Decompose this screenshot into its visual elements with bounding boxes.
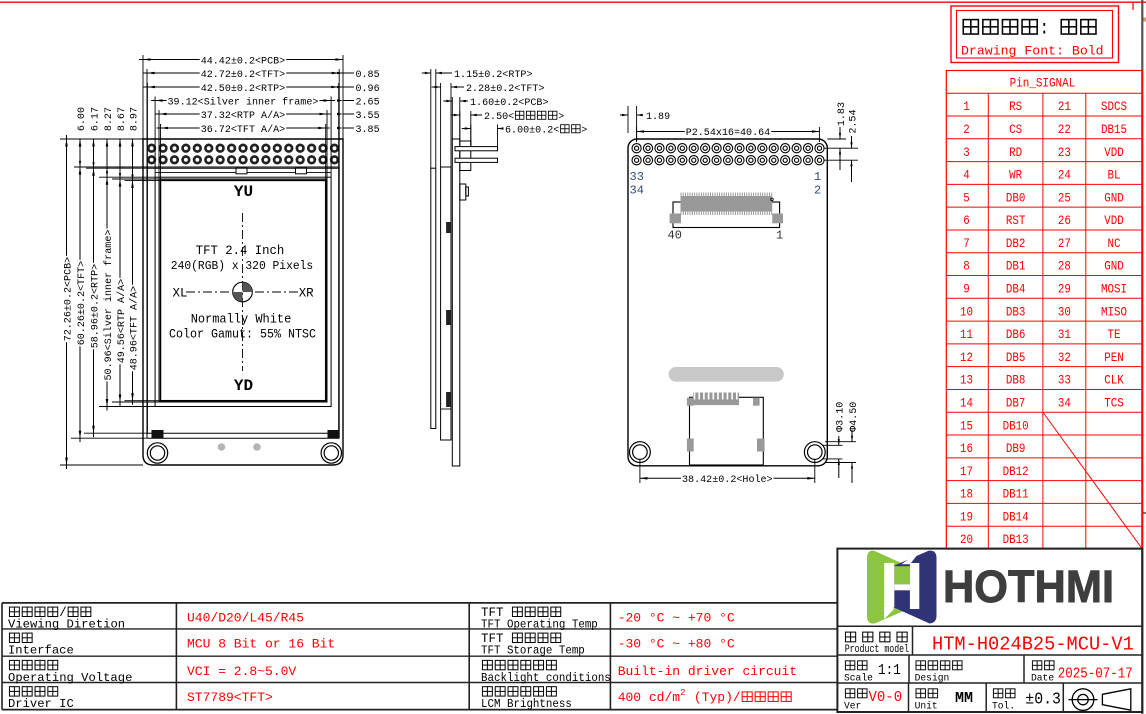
svg-text:MISO: MISO — [1101, 304, 1127, 319]
svg-text:24: 24 — [1058, 168, 1071, 183]
svg-text:MM: MM — [955, 690, 973, 707]
svg-text:32: 32 — [1058, 350, 1071, 365]
svg-text:DB2: DB2 — [1006, 236, 1026, 251]
svg-text:31: 31 — [1058, 327, 1071, 342]
svg-text:6.17: 6.17 — [89, 107, 101, 131]
svg-text:1: 1 — [963, 99, 970, 114]
svg-text:16: 16 — [960, 441, 973, 456]
svg-text:RS: RS — [1009, 99, 1022, 114]
svg-text:400 cd/m: 400 cd/m — [618, 690, 681, 705]
svg-text:20: 20 — [960, 532, 973, 547]
svg-text:YU: YU — [234, 183, 253, 201]
svg-text:1:1: 1:1 — [878, 662, 901, 679]
svg-text:38.42±0.2<Hole>: 38.42±0.2<Hole> — [682, 474, 773, 486]
svg-text:19: 19 — [960, 509, 973, 524]
svg-text:0.85: 0.85 — [356, 69, 380, 81]
svg-text:DB1: DB1 — [1006, 259, 1026, 274]
svg-text:14: 14 — [960, 396, 973, 411]
svg-text:TE: TE — [1108, 327, 1121, 342]
svg-text:DB7: DB7 — [1006, 396, 1026, 411]
svg-text:HTM-H024B25-MCU-V1: HTM-H024B25-MCU-V1 — [932, 634, 1134, 656]
svg-text:2: 2 — [680, 688, 685, 698]
svg-text:4: 4 — [963, 168, 970, 183]
svg-text:RST: RST — [1006, 213, 1026, 228]
svg-text:Design: Design — [915, 673, 950, 685]
svg-text:15: 15 — [960, 418, 973, 433]
svg-text:22: 22 — [1058, 122, 1071, 137]
svg-text:Φ4.50: Φ4.50 — [848, 402, 860, 432]
svg-text:YD: YD — [234, 377, 253, 395]
svg-text:3: 3 — [963, 145, 970, 160]
svg-text:Built-in driver circuit: Built-in driver circuit — [618, 664, 797, 679]
svg-text:49.56<RTP A/A>: 49.56<RTP A/A> — [116, 279, 128, 364]
svg-text:DB5: DB5 — [1006, 350, 1026, 365]
svg-text:Product model: Product model — [845, 644, 909, 656]
svg-text:7: 7 — [963, 236, 970, 251]
svg-text:HOTHMI: HOTHMI — [943, 561, 1114, 612]
svg-text:DB4: DB4 — [1006, 282, 1026, 297]
svg-text:26: 26 — [1058, 213, 1071, 228]
svg-text:50.96<Silver inner frame>: 50.96<Silver inner frame> — [103, 230, 115, 381]
svg-text:3.85: 3.85 — [356, 124, 380, 136]
svg-text:34: 34 — [1058, 396, 1071, 411]
svg-text:39.12<Silver inner frame>: 39.12<Silver inner frame> — [168, 97, 319, 109]
svg-text:DB13: DB13 — [1003, 532, 1029, 547]
svg-text:13: 13 — [960, 373, 973, 388]
svg-text:240(RGB) x 320 Pixels: 240(RGB) x 320 Pixels — [171, 259, 313, 273]
svg-text:(Typ)/: (Typ)/ — [686, 690, 741, 705]
svg-text:-30 °C ~ +80 °C: -30 °C ~ +80 °C — [618, 637, 735, 652]
svg-text:DB8: DB8 — [1006, 373, 1026, 388]
svg-text:Drawing Font: Bold: Drawing Font: Bold — [961, 44, 1104, 59]
svg-text:1: 1 — [814, 170, 821, 184]
svg-text:28: 28 — [1058, 259, 1071, 274]
svg-text:MOSI: MOSI — [1101, 282, 1127, 297]
svg-text:Scale: Scale — [844, 673, 873, 685]
svg-text:GND: GND — [1104, 190, 1124, 205]
svg-text:MCU 8 Bit or 16 Bit: MCU 8 Bit or 16 Bit — [187, 637, 335, 652]
svg-text:DB14: DB14 — [1003, 509, 1029, 524]
svg-text:1: 1 — [776, 229, 783, 243]
svg-text:Operating Voltage: Operating Voltage — [8, 671, 132, 685]
svg-text:RD: RD — [1009, 145, 1022, 160]
svg-text:DB3: DB3 — [1006, 304, 1026, 319]
svg-text:2.28±0.2<TFT>: 2.28±0.2<TFT> — [466, 83, 545, 95]
svg-text:ST7789<TFT>: ST7789<TFT> — [187, 690, 273, 705]
svg-text:2: 2 — [963, 122, 970, 137]
svg-text:27: 27 — [1058, 236, 1071, 251]
svg-text:8.67: 8.67 — [116, 107, 128, 131]
svg-text:DB6: DB6 — [1006, 327, 1026, 342]
svg-text:Driver IC: Driver IC — [8, 697, 74, 711]
svg-text:9: 9 — [963, 282, 970, 297]
svg-text:40: 40 — [668, 229, 682, 243]
svg-text:Φ3.10: Φ3.10 — [835, 402, 847, 432]
svg-text:48.96<TFT A/A>: 48.96<TFT A/A> — [128, 286, 140, 371]
svg-text:2.65: 2.65 — [356, 97, 380, 109]
svg-text:DB10: DB10 — [1003, 418, 1029, 433]
svg-text:DB12: DB12 — [1003, 464, 1029, 479]
svg-text:42.72±0.2<TFT>: 42.72±0.2<TFT> — [201, 69, 286, 81]
svg-text:DB11: DB11 — [1003, 487, 1029, 502]
svg-text:2.54: 2.54 — [847, 110, 859, 134]
svg-text:BL: BL — [1108, 168, 1121, 183]
svg-text:3.55: 3.55 — [356, 110, 380, 122]
svg-text:Unit: Unit — [915, 701, 938, 713]
svg-text:36.72<TFT A/A>: 36.72<TFT A/A> — [201, 124, 286, 136]
svg-text::: : — [1039, 18, 1059, 40]
svg-text:Date: Date — [1031, 673, 1054, 685]
svg-text:U40/D20/L45/R45: U40/D20/L45/R45 — [187, 611, 304, 626]
svg-text:Backlight conditions: Backlight conditions — [481, 671, 611, 685]
svg-text:±0.3: ±0.3 — [1025, 690, 1061, 709]
svg-text:18: 18 — [960, 487, 973, 502]
svg-text:XL: XL — [173, 287, 188, 301]
svg-text:12: 12 — [960, 350, 973, 365]
svg-text:PEN: PEN — [1104, 350, 1124, 365]
svg-text:60.26±0.2<TFT>: 60.26±0.2<TFT> — [76, 261, 88, 346]
svg-text:DB15: DB15 — [1101, 122, 1127, 137]
svg-text:TFT Operating Temp: TFT Operating Temp — [481, 618, 598, 632]
svg-text:10: 10 — [960, 304, 973, 319]
svg-text:30: 30 — [1058, 304, 1071, 319]
svg-text:XR: XR — [299, 287, 314, 301]
svg-text:Tol.: Tol. — [992, 701, 1015, 713]
svg-text:2025-07-17: 2025-07-17 — [1058, 666, 1133, 683]
svg-text:CS: CS — [1009, 122, 1022, 137]
svg-text:23: 23 — [1058, 145, 1071, 160]
svg-text:Normally White: Normally White — [191, 313, 292, 327]
svg-text:Pin_SIGNAL: Pin_SIGNAL — [1010, 77, 1076, 91]
svg-text:11: 11 — [960, 327, 973, 342]
svg-text:0.96: 0.96 — [356, 83, 380, 95]
svg-text:72.26±0.2<PCB>: 72.26±0.2<PCB> — [62, 257, 74, 342]
svg-text:34: 34 — [630, 184, 644, 198]
svg-text:>: > — [558, 111, 564, 123]
svg-text:Interface: Interface — [8, 644, 74, 658]
svg-text:>: > — [581, 125, 587, 137]
svg-text:Color Gamut: 55% NTSC: Color Gamut: 55% NTSC — [169, 328, 316, 342]
svg-text:17: 17 — [960, 464, 973, 479]
svg-text:NC: NC — [1108, 236, 1121, 251]
svg-text:V0-0: V0-0 — [869, 690, 903, 706]
svg-text:21: 21 — [1058, 99, 1071, 114]
svg-text:DB0: DB0 — [1006, 190, 1026, 205]
svg-text:1.15±0.2<RTP>: 1.15±0.2<RTP> — [454, 69, 533, 81]
svg-text:58.96±0.2<RTP>: 58.96±0.2<RTP> — [89, 264, 101, 349]
svg-text:33: 33 — [630, 170, 644, 184]
svg-text:2.50<: 2.50< — [484, 111, 514, 123]
svg-text:Viewing Diretion: Viewing Diretion — [8, 618, 125, 632]
svg-text:Ver: Ver — [844, 701, 861, 713]
svg-text:37.32<RTP A/A>: 37.32<RTP A/A> — [201, 110, 286, 122]
svg-text:25: 25 — [1058, 190, 1071, 205]
svg-text:6.00: 6.00 — [76, 107, 88, 131]
svg-text:8.97: 8.97 — [128, 107, 140, 131]
svg-text:8.27: 8.27 — [103, 107, 115, 131]
svg-text:44.42±0.2<PCB>: 44.42±0.2<PCB> — [201, 56, 286, 68]
svg-text:29: 29 — [1058, 282, 1071, 297]
svg-text:VDD: VDD — [1104, 145, 1124, 160]
svg-text:2: 2 — [814, 184, 821, 198]
svg-text:6.00±0.2<: 6.00±0.2< — [505, 125, 559, 137]
svg-text:8: 8 — [963, 259, 970, 274]
svg-text:TFT 2.4 Inch: TFT 2.4 Inch — [196, 244, 284, 258]
svg-text:LCM Brightness: LCM Brightness — [481, 697, 572, 711]
svg-text:WR: WR — [1009, 168, 1022, 183]
svg-text:6: 6 — [963, 213, 970, 228]
svg-text:1.60±0.2<PCB>: 1.60±0.2<PCB> — [470, 97, 549, 109]
svg-text:SDCS: SDCS — [1101, 99, 1127, 114]
svg-text:GND: GND — [1104, 259, 1124, 274]
svg-text:42.50±0.2<RTP>: 42.50±0.2<RTP> — [201, 83, 286, 95]
svg-text:P2.54x16=40.64: P2.54x16=40.64 — [686, 127, 771, 139]
svg-text:TFT Storage Temp: TFT Storage Temp — [481, 644, 585, 658]
svg-text:33: 33 — [1058, 373, 1071, 388]
svg-text:5: 5 — [963, 190, 970, 205]
svg-text:1.83: 1.83 — [836, 102, 848, 126]
svg-text:VCI = 2.8~5.0V: VCI = 2.8~5.0V — [187, 664, 296, 679]
svg-text:DB9: DB9 — [1006, 441, 1026, 456]
svg-text:1.89: 1.89 — [646, 111, 670, 123]
svg-text:TCS: TCS — [1104, 396, 1124, 411]
svg-text:-20 °C ~ +70 °C: -20 °C ~ +70 °C — [618, 611, 735, 626]
svg-text:VDD: VDD — [1104, 213, 1124, 228]
svg-text:CLK: CLK — [1104, 373, 1124, 388]
